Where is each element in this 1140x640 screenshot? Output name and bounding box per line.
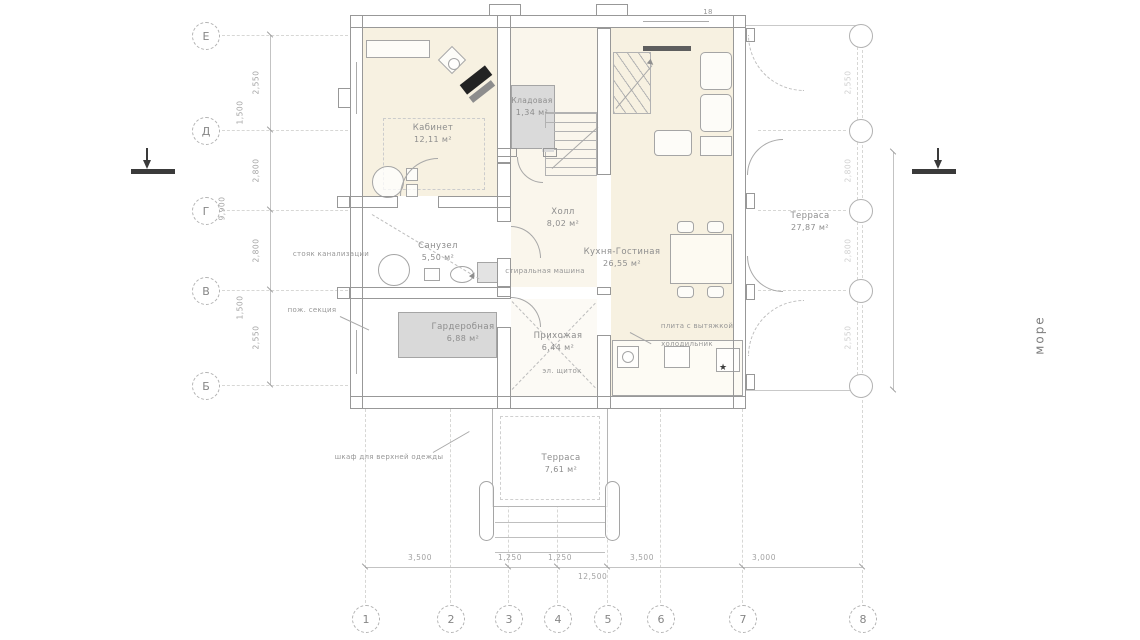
terrace-pilaster	[746, 284, 755, 300]
desk-chair-seat	[448, 58, 460, 70]
terrace-rail	[605, 481, 620, 541]
coat-closet-leader	[433, 431, 470, 453]
kitchen-sink-bowl	[622, 351, 634, 363]
grid-col-bubble-1: 1	[352, 605, 380, 633]
room-name: Санузел	[418, 241, 458, 251]
note-washing-machine: стиральная машина	[505, 267, 585, 275]
room-name: Гардеробная	[431, 322, 494, 332]
dim-bottom-4: 3,500	[630, 553, 654, 562]
wall-wardrobe-right	[497, 287, 511, 297]
dining-table	[670, 234, 732, 284]
room-area: 7,61 м²	[541, 464, 580, 476]
dim-line-bottom	[365, 567, 862, 568]
dim-bottom-2: 1,250	[498, 553, 522, 562]
star-mark: ★	[719, 363, 727, 373]
room-label-terrace-south: Терраса 7,61 м²	[541, 452, 580, 476]
window-glass-line	[356, 330, 357, 374]
grid-col-line	[450, 409, 451, 603]
grid-row-bubble-D: Д	[192, 117, 220, 145]
door-gap-terrace-east	[734, 252, 745, 294]
floor-plan-canvas: Кабинет 12,11 м² Кладовая 1,34 м² Холл 8…	[0, 0, 1140, 640]
grid-col-bubble-8: 8	[849, 605, 877, 633]
terrace-rail	[479, 481, 494, 541]
grid-circle-right	[849, 119, 873, 143]
grid-col-line	[862, 30, 863, 603]
room-area: 5,50 м²	[418, 252, 458, 264]
side-table	[700, 136, 732, 156]
dim-bottom-5: 3,000	[752, 553, 776, 562]
grid-col-line	[365, 409, 366, 603]
grid-row-line	[758, 130, 846, 131]
dim-left-1: 2,550	[251, 71, 260, 95]
section-mark-arrow	[143, 160, 151, 169]
room-label-hall: Холл 8,02 м²	[547, 206, 579, 230]
grid-circle-right	[849, 24, 873, 48]
stove	[664, 346, 690, 368]
dim-left-partial-2: 1,500	[235, 296, 244, 320]
wall-entry-right	[597, 335, 611, 409]
room-label-storage: Кладовая 1,34 м²	[511, 96, 552, 118]
room-name: Прихожая	[534, 331, 583, 341]
desk	[366, 40, 430, 58]
terrace-pilaster	[746, 374, 755, 390]
door-arc-terrace-east	[747, 139, 783, 175]
dining-chair	[707, 286, 724, 298]
wall-hall-left	[497, 163, 511, 222]
dim-right-3: 2,800	[843, 239, 852, 263]
dim-left-3: 2,800	[251, 239, 260, 263]
room-area: 6,44 м²	[534, 342, 583, 354]
room-label-office: Кабинет 12,11 м²	[413, 122, 454, 146]
door-gap-terrace-east	[734, 137, 745, 179]
grid-circle-right	[849, 374, 873, 398]
note-fridge: холодильник	[661, 340, 713, 348]
room-label-wardrobe: Гардеробная 6,88 м²	[431, 321, 494, 345]
grid-row-bubble-G: Г	[192, 197, 220, 225]
wall-entry-right	[597, 287, 611, 295]
note-electrical-panel: эл. щиток	[542, 367, 581, 375]
wall-office-bottom	[350, 196, 398, 208]
dim-bottom-3: 1,250	[548, 553, 572, 562]
window-glass-line	[356, 62, 357, 114]
grid-row-line	[222, 290, 348, 291]
room-area: 12,11 м²	[413, 134, 454, 146]
section-mark-bar	[912, 169, 956, 174]
dim-left-2: 2,800	[251, 159, 260, 183]
washing-machine-box	[477, 262, 498, 283]
tv-console	[643, 46, 691, 51]
grid-row-line	[222, 385, 348, 386]
room-name: Холл	[551, 207, 575, 217]
wall-pier	[596, 4, 628, 16]
note-sewer-riser: стояк канализации	[293, 250, 369, 258]
wall-stair	[597, 28, 611, 175]
terrace-pilaster	[746, 193, 755, 209]
wall-pier	[337, 196, 350, 208]
grid-col-bubble-5: 5	[594, 605, 622, 633]
dim-right-2: 2,800	[843, 159, 852, 183]
room-label-terrace-east: Терраса 27,87 м²	[790, 210, 829, 234]
section-mark-arrow	[934, 160, 942, 169]
sea-label: море	[1033, 315, 1047, 354]
grid-row-bubble-B: Б	[192, 372, 220, 400]
coffee-table	[654, 130, 692, 156]
room-label-entry: Прихожая 6,44 м²	[534, 330, 583, 354]
dim-bottom-1: 3,500	[408, 553, 432, 562]
note-fire-section: пож. секция	[288, 306, 337, 314]
room-name: Терраса	[790, 211, 829, 221]
dim-right-1: 2,550	[843, 71, 852, 95]
grid-row-bubble-V: В	[192, 277, 220, 305]
dining-chair	[707, 221, 724, 233]
dim-left-partial-1: 1,500	[235, 101, 244, 125]
wall-right	[733, 15, 746, 409]
room-area: 26,55 м²	[584, 258, 661, 270]
wall-pier	[338, 88, 351, 108]
grid-col-bubble-7: 7	[729, 605, 757, 633]
shower	[378, 254, 410, 286]
wall-storage-bottom	[543, 148, 557, 157]
grid-col-bubble-2: 2	[437, 605, 465, 633]
room-name: Кладовая	[511, 96, 552, 105]
wall-bath-bottom	[350, 287, 511, 299]
sink-basin	[424, 268, 440, 281]
wall-storage-bottom	[497, 148, 517, 157]
wall-office-bottom	[438, 196, 511, 208]
door-swing-dashed	[748, 300, 804, 356]
dining-chair	[677, 286, 694, 298]
step-line	[495, 522, 605, 523]
grid-col-line	[660, 409, 661, 603]
room-area: 6,88 м²	[431, 333, 494, 345]
note-top-mark: 18	[703, 8, 713, 16]
terrace-edge	[746, 25, 857, 26]
window-glass-line	[643, 21, 709, 22]
room-area: 8,02 м²	[547, 218, 579, 230]
door-gap-terrace-south	[522, 397, 576, 408]
grid-row-line	[222, 35, 348, 36]
step-line	[495, 537, 605, 538]
room-name: Терраса	[541, 453, 580, 463]
terrace-edge	[746, 390, 857, 391]
room-label-bathroom: Санузел 5,50 м²	[418, 240, 458, 264]
grid-col-bubble-6: 6	[647, 605, 675, 633]
dining-chair	[677, 221, 694, 233]
dim-line-terrace	[893, 152, 894, 390]
section-mark-bar	[131, 169, 175, 174]
grid-col-bubble-4: 4	[544, 605, 572, 633]
note-stove-hood: плита с вытяжкой	[661, 322, 733, 330]
sofa-seat	[700, 94, 732, 132]
grid-row-bubble-E: Е	[192, 22, 220, 50]
room-area: 1,34 м²	[511, 107, 552, 119]
grid-circle-right	[849, 199, 873, 223]
room-label-kitchen-living: Кухня-Гостиная 26,55 м²	[584, 246, 661, 270]
room-name: Кабинет	[413, 123, 454, 133]
grid-col-bubble-3: 3	[495, 605, 523, 633]
grid-col-line	[742, 409, 743, 603]
sofa-seat	[700, 52, 732, 90]
grid-row-line	[222, 210, 348, 211]
room-area: 27,87 м²	[790, 222, 829, 234]
dim-bottom-total: 12,500	[578, 572, 607, 581]
note-coat-closet: шкаф для верхней одежды	[335, 453, 444, 461]
grid-circle-right	[849, 279, 873, 303]
dim-left-4: 2,550	[251, 326, 260, 350]
dim-right-4: 2,550	[843, 326, 852, 350]
wall-wardrobe-right	[497, 327, 511, 409]
grid-row-line	[222, 130, 348, 131]
wall-office-right	[497, 15, 511, 163]
wall-pier	[489, 4, 521, 16]
wall-pier	[337, 287, 350, 299]
door-swing-dashed	[748, 35, 804, 91]
room-name: Кухня-Гостиная	[584, 247, 661, 257]
